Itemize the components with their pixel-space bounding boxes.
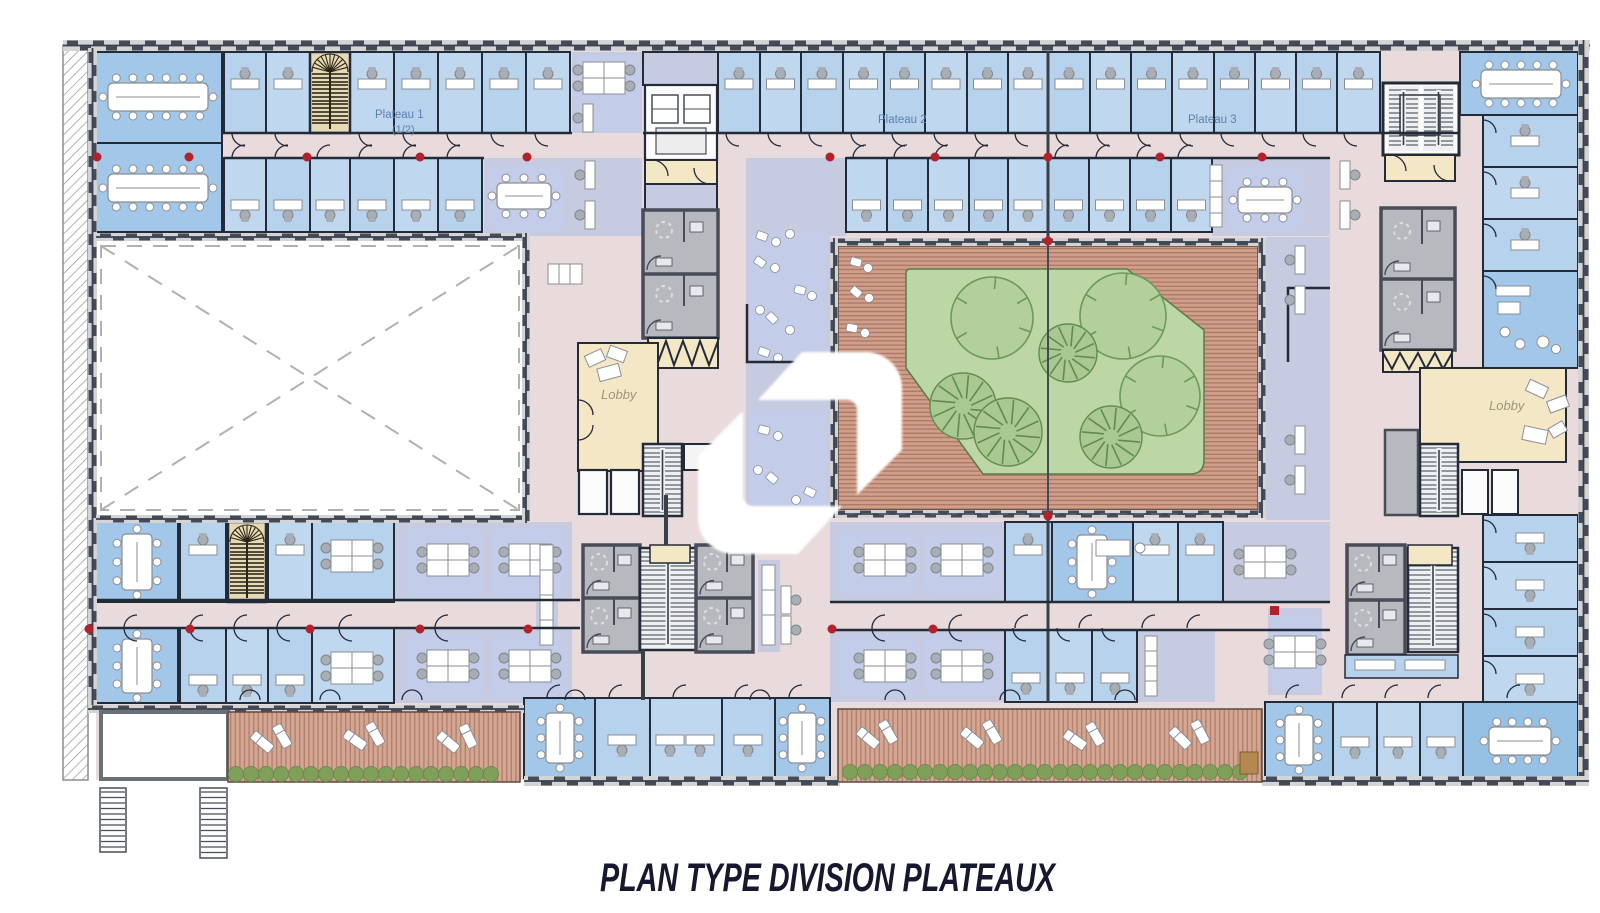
- svg-text:(1/2): (1/2): [392, 124, 415, 136]
- svg-text:Lobby: Lobby: [601, 387, 638, 402]
- svg-text:Plateau 2: Plateau 2: [878, 114, 927, 126]
- svg-text:PLAN TYPE DIVISION PLATEAUX: PLAN TYPE DIVISION PLATEAUX: [600, 856, 1057, 900]
- svg-text:Lobby: Lobby: [1489, 398, 1526, 413]
- svg-text:Plateau 3: Plateau 3: [1188, 114, 1237, 126]
- svg-text:Plateau 1: Plateau 1: [375, 109, 424, 121]
